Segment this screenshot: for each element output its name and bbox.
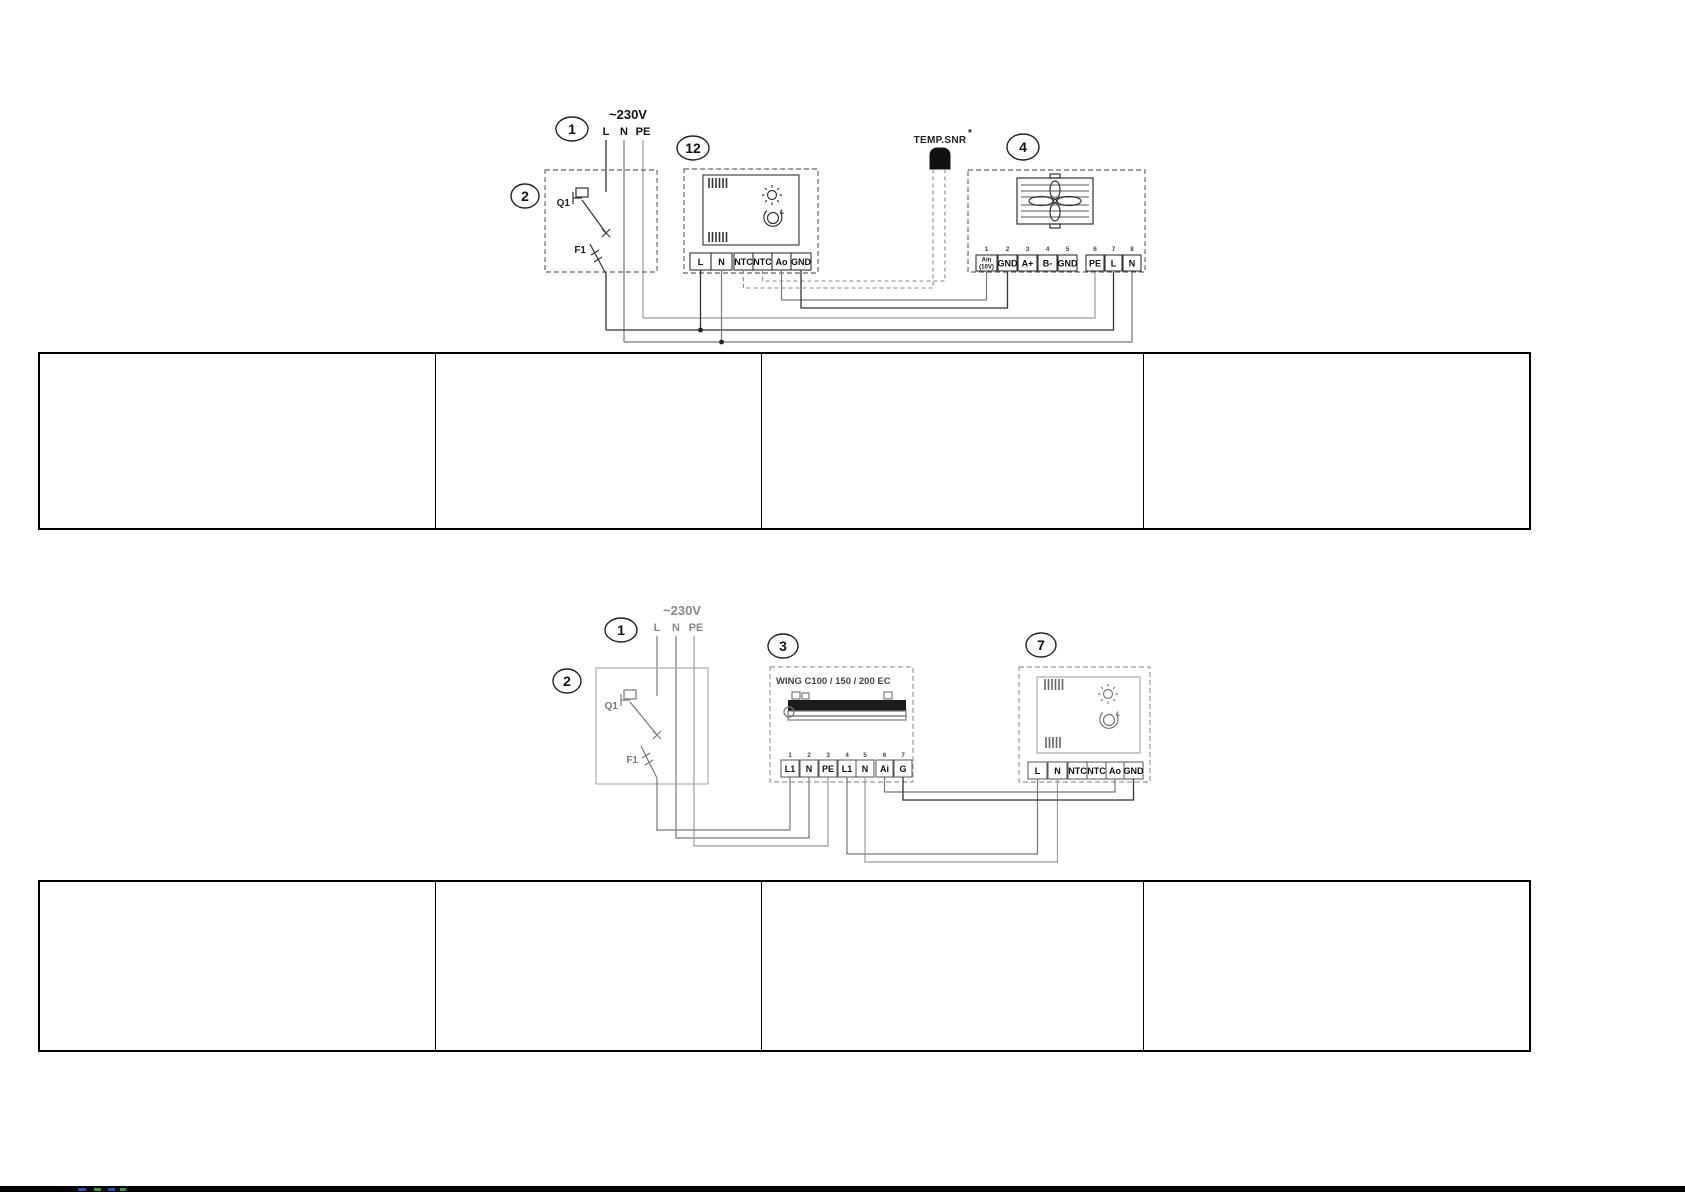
terminal-label: N: [718, 257, 725, 267]
fan-icon: [1017, 174, 1093, 228]
terminal-number: 2: [1006, 246, 1010, 253]
callout-3: 3: [779, 638, 787, 654]
terminal-label: Ain: [982, 258, 992, 264]
circuit-breaker-symbol: Q1: [605, 690, 661, 739]
sensor-asterisk: *: [968, 128, 972, 139]
terminal-number: 5: [863, 752, 867, 759]
table-cell: [761, 354, 1143, 528]
vent-grille-icon: [1045, 679, 1063, 748]
terminal-label: L: [1035, 766, 1041, 776]
terminal-number: 1: [788, 752, 792, 759]
terminal-label: Ao: [776, 257, 788, 267]
page-bottom-bar: [0, 1186, 1685, 1192]
junction-dot: [719, 340, 724, 345]
terminal-label: N: [1129, 259, 1136, 269]
controller-front: [703, 175, 799, 245]
scan-artifact: [120, 1188, 126, 1191]
supply-line-l: L: [654, 622, 661, 634]
terminal-number: 7: [1112, 246, 1116, 253]
callout-12: 12: [685, 140, 701, 156]
pe-wire: [694, 636, 828, 846]
table-cell: [1143, 354, 1529, 528]
terminal-label: NTC: [753, 257, 772, 267]
air-curtain-terminal-strip: L1 N PE L1 N Ai G: [781, 760, 912, 777]
fan-terminal-numbers: 1 2 3 4 5 6 7 8: [985, 246, 1135, 253]
table-cell: [40, 354, 435, 528]
legend-table-bottom: [38, 880, 1531, 1052]
n-wire: [676, 636, 809, 838]
terminal-number: 4: [845, 752, 849, 759]
table-cell: [40, 882, 435, 1050]
table-cell: [761, 882, 1143, 1050]
terminal-number: 7: [901, 752, 905, 759]
callout-2: 2: [563, 673, 571, 689]
fuse-label: F1: [574, 245, 586, 256]
terminal-number: 3: [1026, 246, 1030, 253]
terminal-label: N: [1054, 766, 1061, 776]
ground-wire: [801, 270, 1008, 308]
fuse-symbol: F1: [626, 746, 657, 778]
ground-wire: [903, 777, 1134, 800]
terminal-label: L1: [785, 764, 796, 774]
junction-dot: [698, 328, 703, 333]
legend-table-top: [38, 352, 1531, 530]
breaker-box: [545, 170, 657, 272]
terminal-number: 3: [826, 752, 830, 759]
terminal-label: Ao: [1109, 766, 1121, 776]
l-wire: [657, 777, 790, 830]
terminal-label: G: [899, 764, 906, 774]
terminal-number: 2: [807, 752, 811, 759]
fuse-label: F1: [626, 755, 638, 766]
fan-terminal-strip: Ain (10V) GND A+ B- GND PE L N: [976, 255, 1141, 271]
terminal-label: PE: [822, 764, 834, 774]
terminal-label: GND: [998, 259, 1019, 269]
n-feed-wire: [865, 777, 1058, 862]
callout-7: 7: [1037, 637, 1045, 653]
supply-line-pe: PE: [636, 126, 651, 138]
supply-line-n: N: [672, 622, 680, 634]
terminal-label: N: [806, 764, 813, 774]
top-wiring-diagram: ~230V L N PE 1 2 Q1 F1 12: [511, 107, 1145, 344]
supply-line-n: N: [620, 126, 628, 138]
terminal-number: 6: [1093, 246, 1097, 253]
controller-terminal-strip: L N NTC NTC Ao GND: [690, 253, 812, 270]
knob-icon: [1100, 712, 1120, 729]
l-feed-wire: [847, 777, 1038, 854]
terminal-number: 8: [1130, 246, 1134, 253]
terminal-number: 1: [985, 246, 989, 253]
breaker-box: [596, 668, 708, 784]
terminal-label: Ai: [880, 764, 889, 774]
breaker-label: Q1: [605, 701, 619, 712]
fuse-symbol: F1: [574, 244, 606, 274]
air-curtain-terminal-numbers: 1 2 3 4 5 6 7: [788, 752, 905, 759]
scan-artifact: [78, 1188, 86, 1191]
sun-icon: [1098, 684, 1118, 704]
terminal-label: L1: [842, 764, 853, 774]
terminal-label: A+: [1022, 259, 1034, 269]
terminal-label: GND: [791, 257, 812, 267]
callout-1: 1: [568, 121, 576, 137]
terminal-label: NTC: [1087, 766, 1106, 776]
callout-4: 4: [1019, 139, 1027, 155]
bottom-wiring-diagram: ~230V L N PE 1 2 Q1 F1 3 WING: [553, 603, 1150, 862]
analog-out-wire: [782, 270, 987, 300]
sensor-body: [930, 148, 950, 169]
table-cell: [435, 354, 761, 528]
supply-line-pe: PE: [689, 622, 704, 634]
terminal-label: NTC: [734, 257, 753, 267]
terminal-label: GND: [1058, 259, 1079, 269]
air-curtain-title: WING C100 / 150 / 200 EC: [776, 676, 891, 687]
scan-artifact: [94, 1188, 101, 1191]
supply-voltage-label: ~230V: [609, 107, 647, 122]
terminal-sublabel: (10V): [979, 265, 994, 271]
air-curtain-icon: [784, 692, 906, 720]
terminal-number: 4: [1046, 246, 1050, 253]
controller-terminal-strip: L N NTC NTC Ao GND: [1028, 762, 1144, 779]
terminal-label: L: [698, 257, 704, 267]
scan-artifact: [108, 1188, 115, 1191]
terminal-label: NTC: [1068, 766, 1087, 776]
air-curtain-body: [788, 700, 906, 711]
terminal-label: B-: [1043, 259, 1053, 269]
terminal-label: N: [862, 764, 869, 774]
terminal-number: 5: [1066, 246, 1070, 253]
circuit-breaker-symbol: Q1: [557, 188, 610, 237]
callout-2: 2: [521, 188, 529, 204]
breaker-label: Q1: [557, 198, 571, 209]
table-cell: [1143, 882, 1529, 1050]
terminal-label: GND: [1124, 766, 1145, 776]
supply-voltage-label: ~230V: [663, 603, 701, 618]
sensor-label: TEMP.SNR: [914, 135, 967, 146]
supply-line-l: L: [603, 126, 610, 138]
callout-1: 1: [617, 622, 625, 638]
terminal-number: 6: [883, 752, 887, 759]
terminal-label: L: [1111, 259, 1117, 269]
table-cell: [435, 882, 761, 1050]
terminal-label: PE: [1089, 259, 1101, 269]
temp-sensor: TEMP.SNR *: [914, 128, 973, 169]
pe-wire: [643, 272, 1095, 318]
